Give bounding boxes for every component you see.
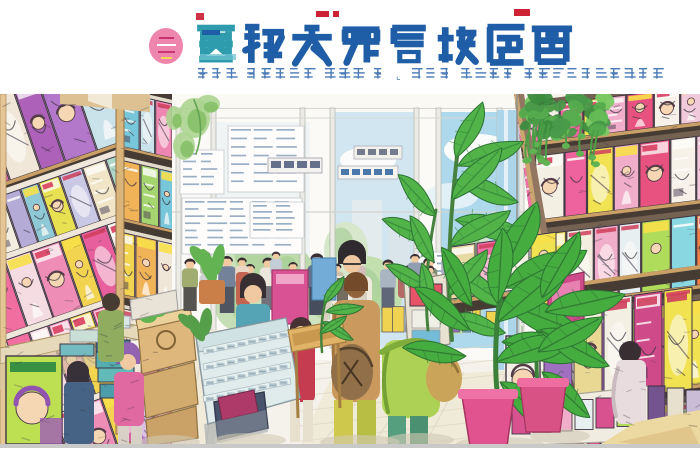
svg-text:⌞: ⌞: [396, 71, 401, 82]
